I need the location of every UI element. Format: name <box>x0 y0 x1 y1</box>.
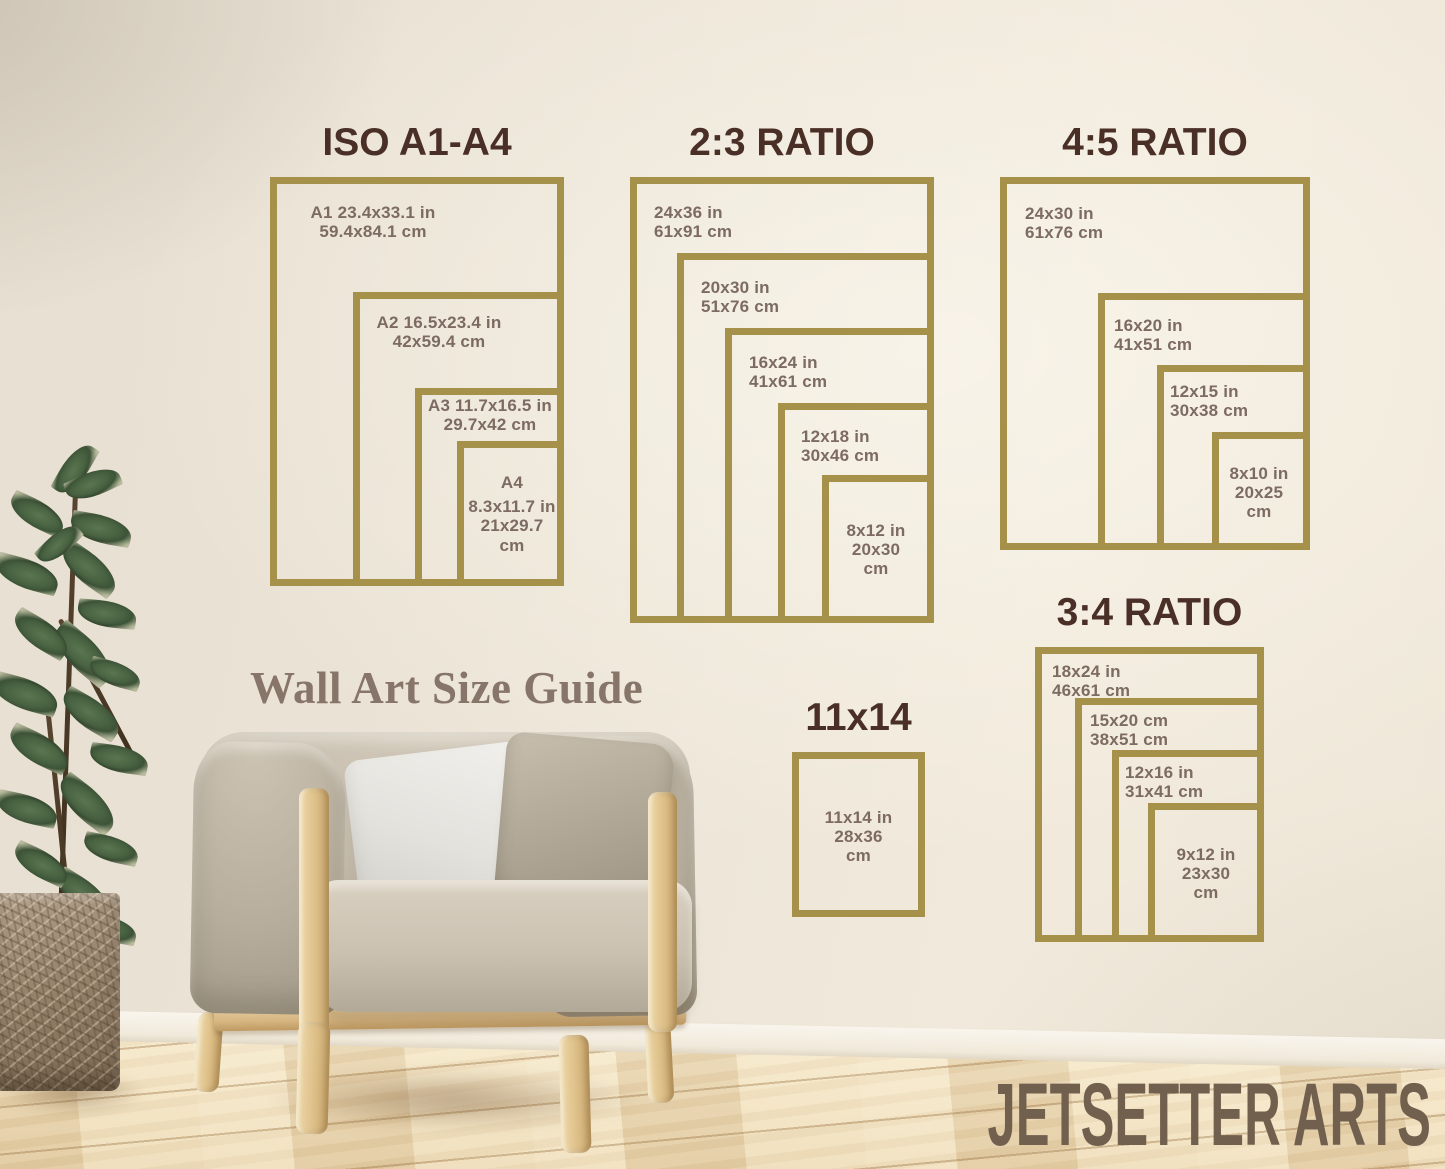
frame-label-15x20: 15x20 cm38x51 cm <box>1090 711 1168 749</box>
frame-label-16x24: 16x24 in41x61 cm <box>749 353 827 391</box>
frame-label-a2: A2 16.5x23.4 in42x59.4 cm <box>358 313 520 351</box>
chair-leg-front-left <box>296 1022 331 1135</box>
brand-watermark: JETSETTER ARTS <box>988 1079 1431 1150</box>
size-group-11x14: 11x14 11x14 in28x36cm <box>792 752 925 917</box>
group-title-2-3: 2:3 RATIO <box>570 123 994 162</box>
frame-label-11x14: 11x14 in28x36cm <box>792 808 925 866</box>
frame-label-8x12: 8x12 in20x30cm <box>830 521 922 579</box>
chair-shadow <box>180 1056 725 1144</box>
frame-label-20x30: 20x30 in51x76 cm <box>701 278 779 316</box>
frame-label-8x10: 8x10 in20x25cm <box>1215 464 1303 522</box>
frame-label-24x30: 24x30 in61x76 cm <box>1025 204 1103 242</box>
frame-label-12x15: 12x15 in30x38 cm <box>1170 382 1248 420</box>
size-group-ratio-2-3: 2:3 RATIO 24x36 in61x91 cm 20x30 in51x76… <box>630 177 934 623</box>
group-title-iso: ISO A1-A4 <box>210 123 624 162</box>
frame-label-a1: A1 23.4x33.1 in59.4x84.1 cm <box>286 203 460 241</box>
size-group-ratio-3-4: 3:4 RATIO 18x24 in46x61 cm 15x20 cm38x51… <box>1035 647 1264 942</box>
scene: ISO A1-A4 A1 23.4x33.1 in59.4x84.1 cm A2… <box>0 0 1445 1169</box>
chair-post-right <box>648 792 677 1032</box>
chair-leg-front-right <box>558 1035 591 1154</box>
chair-post-left <box>299 788 329 1038</box>
chair-seat-cushion <box>316 880 692 1012</box>
frame-label-a4: A48.3x11.7 in21x29.7cm <box>465 473 559 555</box>
group-title-3-4: 3:4 RATIO <box>975 593 1324 632</box>
group-title-4-5: 4:5 RATIO <box>940 123 1370 162</box>
size-group-iso: ISO A1-A4 A1 23.4x33.1 in59.4x84.1 cm A2… <box>270 177 564 586</box>
frame-label-16x20: 16x20 in41x51 cm <box>1114 316 1192 354</box>
frame-label-9x12: 9x12 in23x30cm <box>1158 845 1254 903</box>
frame-label-12x18: 12x18 in30x46 cm <box>801 427 879 465</box>
size-group-ratio-4-5: 4:5 RATIO 24x30 in61x76 cm 16x20 in41x51… <box>1000 177 1310 550</box>
page-title: Wall Art Size Guide <box>250 666 643 711</box>
frame-label-a3: A3 11.7x16.5 in29.7x42 cm <box>420 396 560 434</box>
group-title-11x14: 11x14 <box>732 698 985 737</box>
frame-label-24x36: 24x36 in61x91 cm <box>654 203 732 241</box>
frame-label-18x24: 18x24 in46x61 cm <box>1052 662 1130 700</box>
frame-label-12x16: 12x16 in31x41 cm <box>1125 763 1203 801</box>
